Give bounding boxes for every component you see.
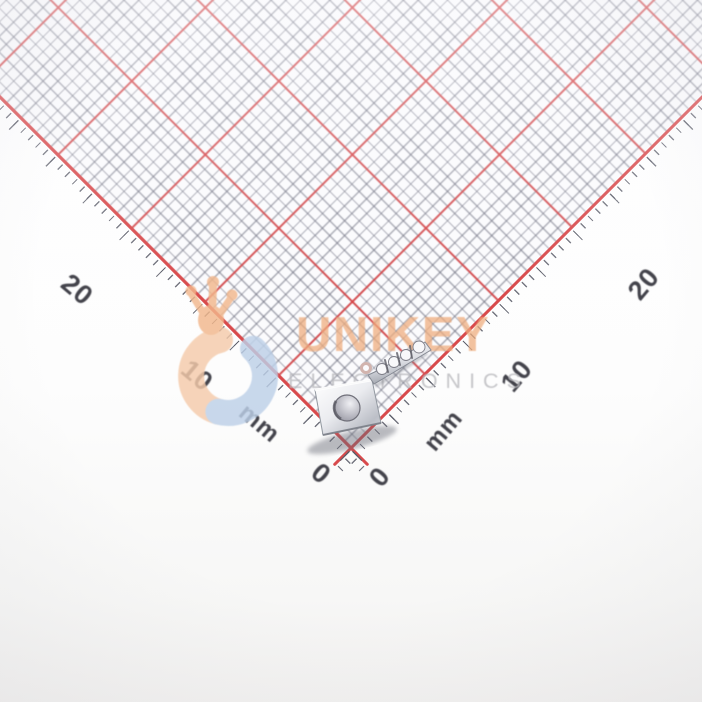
ruler-label-right-10: 10 xyxy=(496,355,537,397)
ruler-label-left-10: 10 xyxy=(176,355,218,396)
ruler-label-left-mm: mm xyxy=(234,400,284,447)
product-photo: 20 10 mm 0 0 mm 10 20 UNIKEY ELECTRONICS xyxy=(0,0,702,702)
crimp-terminal xyxy=(295,328,465,468)
ruler-label-left-20: 20 xyxy=(56,269,98,310)
ruler-label-right-20: 20 xyxy=(623,263,664,305)
bent-tab xyxy=(362,364,371,373)
